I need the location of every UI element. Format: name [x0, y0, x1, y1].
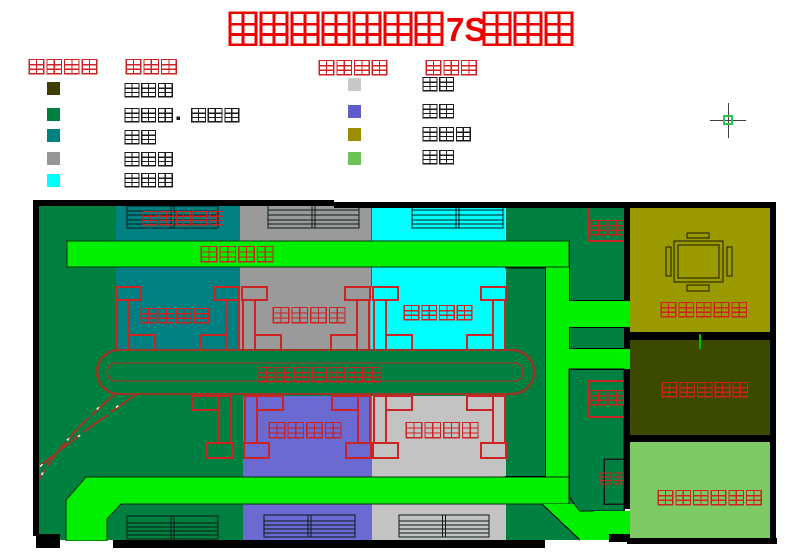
svg-text:7S: 7S	[446, 11, 486, 48]
